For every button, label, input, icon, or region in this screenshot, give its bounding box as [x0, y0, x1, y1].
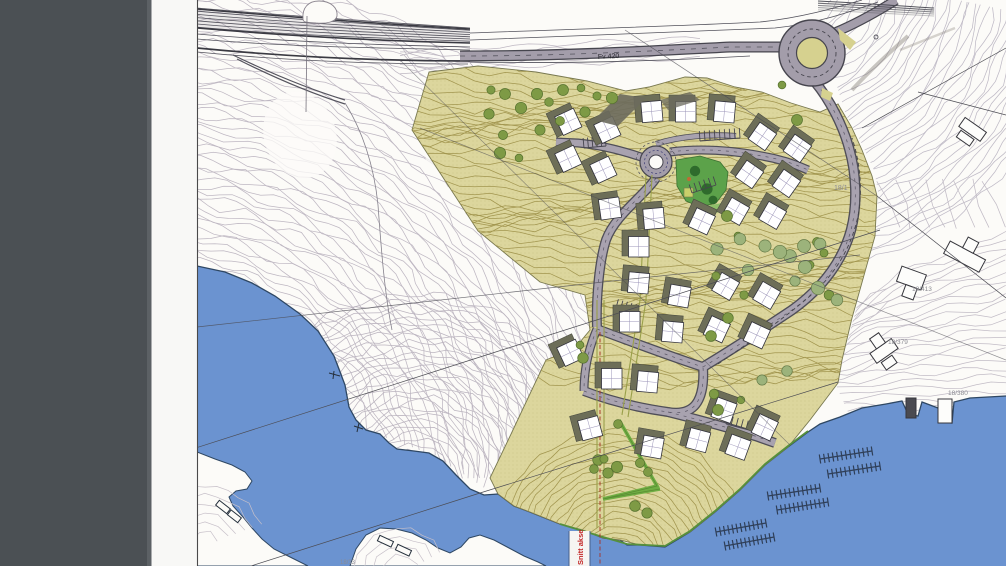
svg-text:18/413: 18/413: [912, 286, 932, 293]
svg-text:18/380: 18/380: [948, 390, 968, 397]
svg-text:18/379: 18/379: [888, 339, 908, 346]
svg-text:18/33: 18/33: [340, 560, 356, 566]
svg-text:Fv 420: Fv 420: [598, 53, 620, 61]
svg-text:18/1: 18/1: [834, 185, 848, 192]
svg-text:Snitt akse: Snitt akse: [576, 530, 585, 565]
